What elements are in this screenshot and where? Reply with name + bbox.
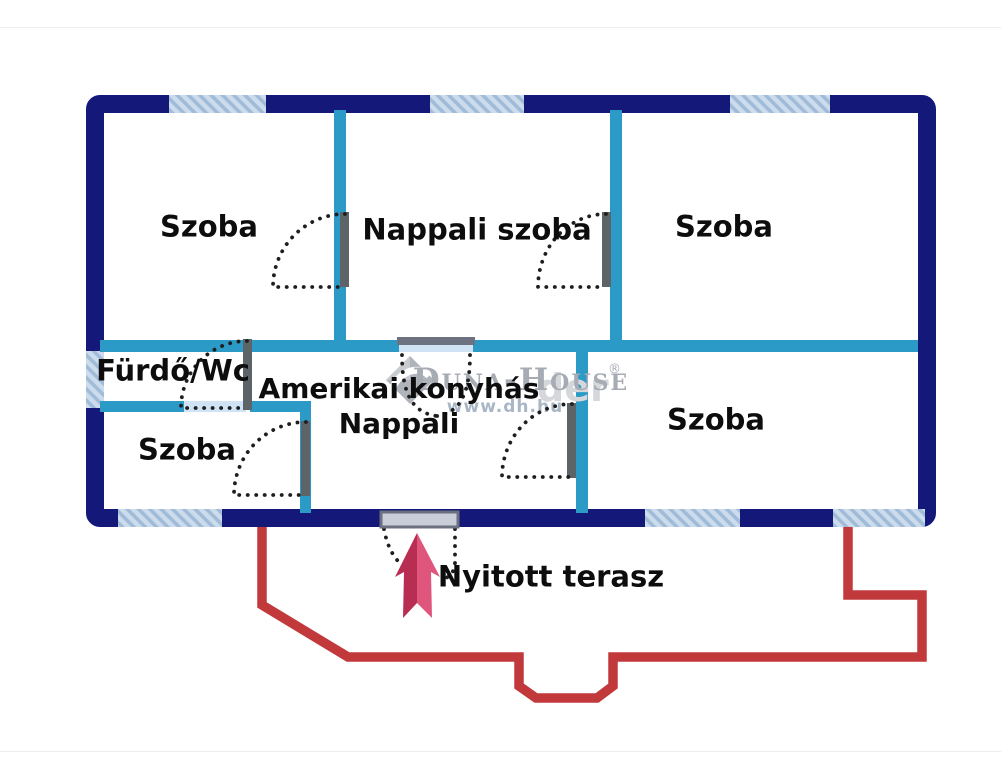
- door-leaf-2: [602, 212, 611, 287]
- room-label-szoba-bottom-left: Szoba: [138, 433, 236, 468]
- door-leaf-1: [340, 212, 349, 287]
- arrow-dark-half: [395, 533, 417, 618]
- window-top-2: [430, 95, 524, 113]
- room-label-szoba-bottom-right: Szoba: [667, 403, 765, 438]
- room-label-line-2: Nappali: [259, 406, 540, 441]
- entrance-lintel: [381, 512, 458, 527]
- room-label-szoba-top-left: Szoba: [160, 210, 258, 245]
- room-label-amerikai-konyhas-nappali: Amerikai konyhás Nappali: [259, 371, 540, 441]
- arrow-light-half: [417, 533, 440, 618]
- window-top-3: [730, 95, 830, 113]
- kitchen-pass-lintel: [397, 337, 475, 345]
- terrace-label: Nyitott terasz: [438, 560, 664, 595]
- entrance-direction-arrow-icon: [395, 533, 440, 618]
- window-bottom-2: [645, 509, 740, 527]
- bath-door-opening: [184, 401, 246, 412]
- door-leaves: [243, 212, 611, 496]
- floor-plan-image: der Duna-House ® www.dh.hu: [0, 0, 1001, 768]
- room-label-furdo-wc: Fürdő/Wc: [96, 354, 250, 389]
- window-top-1: [169, 95, 266, 113]
- room-label-line-1: Amerikai konyhás: [259, 371, 540, 406]
- wall-vertical-2: [610, 110, 622, 344]
- watermark-registered-mark: ®: [608, 362, 621, 377]
- door-leaf-5: [567, 403, 576, 478]
- wall-bath-bottom-left: [100, 401, 184, 412]
- window-bottom-3: [833, 509, 925, 527]
- room-label-szoba-top-right: Szoba: [675, 210, 773, 245]
- terrace-outline: [262, 522, 922, 698]
- window-bottom-1: [118, 509, 222, 527]
- room-label-nappali-szoba: Nappali szoba: [362, 213, 591, 248]
